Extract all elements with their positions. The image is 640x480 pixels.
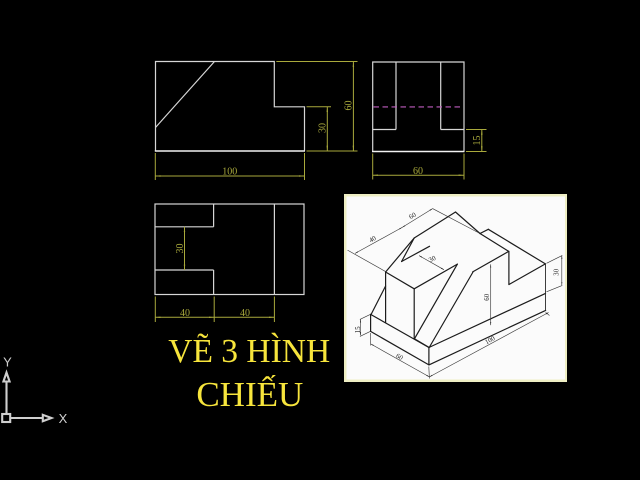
svg-text:40: 40 xyxy=(180,308,190,319)
svg-text:X: X xyxy=(59,411,68,426)
svg-text:VẼ 3 HÌNH: VẼ 3 HÌNH xyxy=(168,333,330,370)
svg-text:Y: Y xyxy=(3,355,12,370)
svg-text:30: 30 xyxy=(553,268,560,275)
svg-text:100: 100 xyxy=(222,167,237,178)
svg-text:CHIẾU: CHIẾU xyxy=(196,374,303,414)
svg-text:30: 30 xyxy=(175,244,186,254)
svg-text:40: 40 xyxy=(240,308,250,319)
svg-text:15: 15 xyxy=(355,326,362,333)
svg-text:15: 15 xyxy=(472,136,483,146)
svg-text:60: 60 xyxy=(413,166,423,177)
svg-text:30: 30 xyxy=(318,123,329,133)
svg-text:60: 60 xyxy=(344,101,355,111)
svg-text:60: 60 xyxy=(484,293,491,300)
